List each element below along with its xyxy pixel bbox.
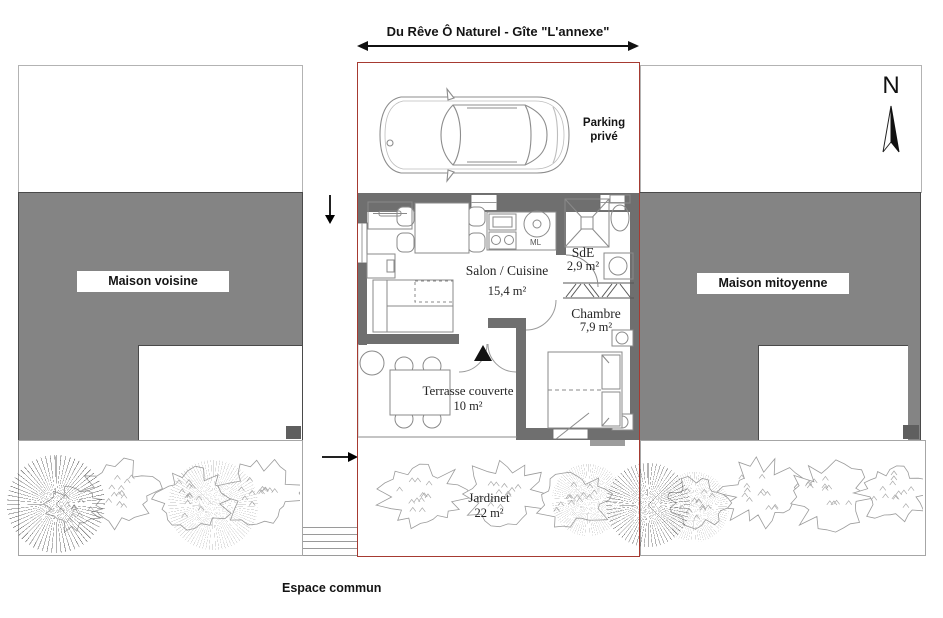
tree-icon — [7, 455, 105, 553]
site-plan: Maison voisine Maison mitoyenne Du Rêve … — [0, 0, 943, 618]
extent-arrow — [357, 41, 639, 50]
compass-needle-icon — [876, 104, 906, 156]
path-steps — [303, 527, 357, 556]
plan-title: Du Rêve Ô Naturel - Gîte "L'annexe" — [330, 24, 666, 39]
left-front-yard — [18, 65, 303, 193]
left-neighbor-label: Maison voisine — [77, 271, 229, 292]
garden-arrow-line — [322, 456, 349, 458]
right-neighbor-label: Maison mitoyenne — [697, 273, 849, 294]
arrow-right-icon — [628, 41, 639, 51]
left-building-courtyard — [138, 345, 302, 440]
right-building-annex-block — [903, 425, 919, 439]
arrow-left-icon — [357, 41, 368, 51]
right-building-courtyard — [758, 345, 908, 440]
entrance-arrow-line — [329, 195, 331, 216]
entrance-arrow-down-icon — [325, 215, 335, 224]
gite-plot-outline — [357, 62, 640, 557]
compass-north-label: N — [876, 72, 906, 100]
tree-icon — [168, 460, 258, 550]
left-building-annex-block — [286, 426, 301, 439]
common-area-label: Espace commun — [282, 581, 381, 595]
